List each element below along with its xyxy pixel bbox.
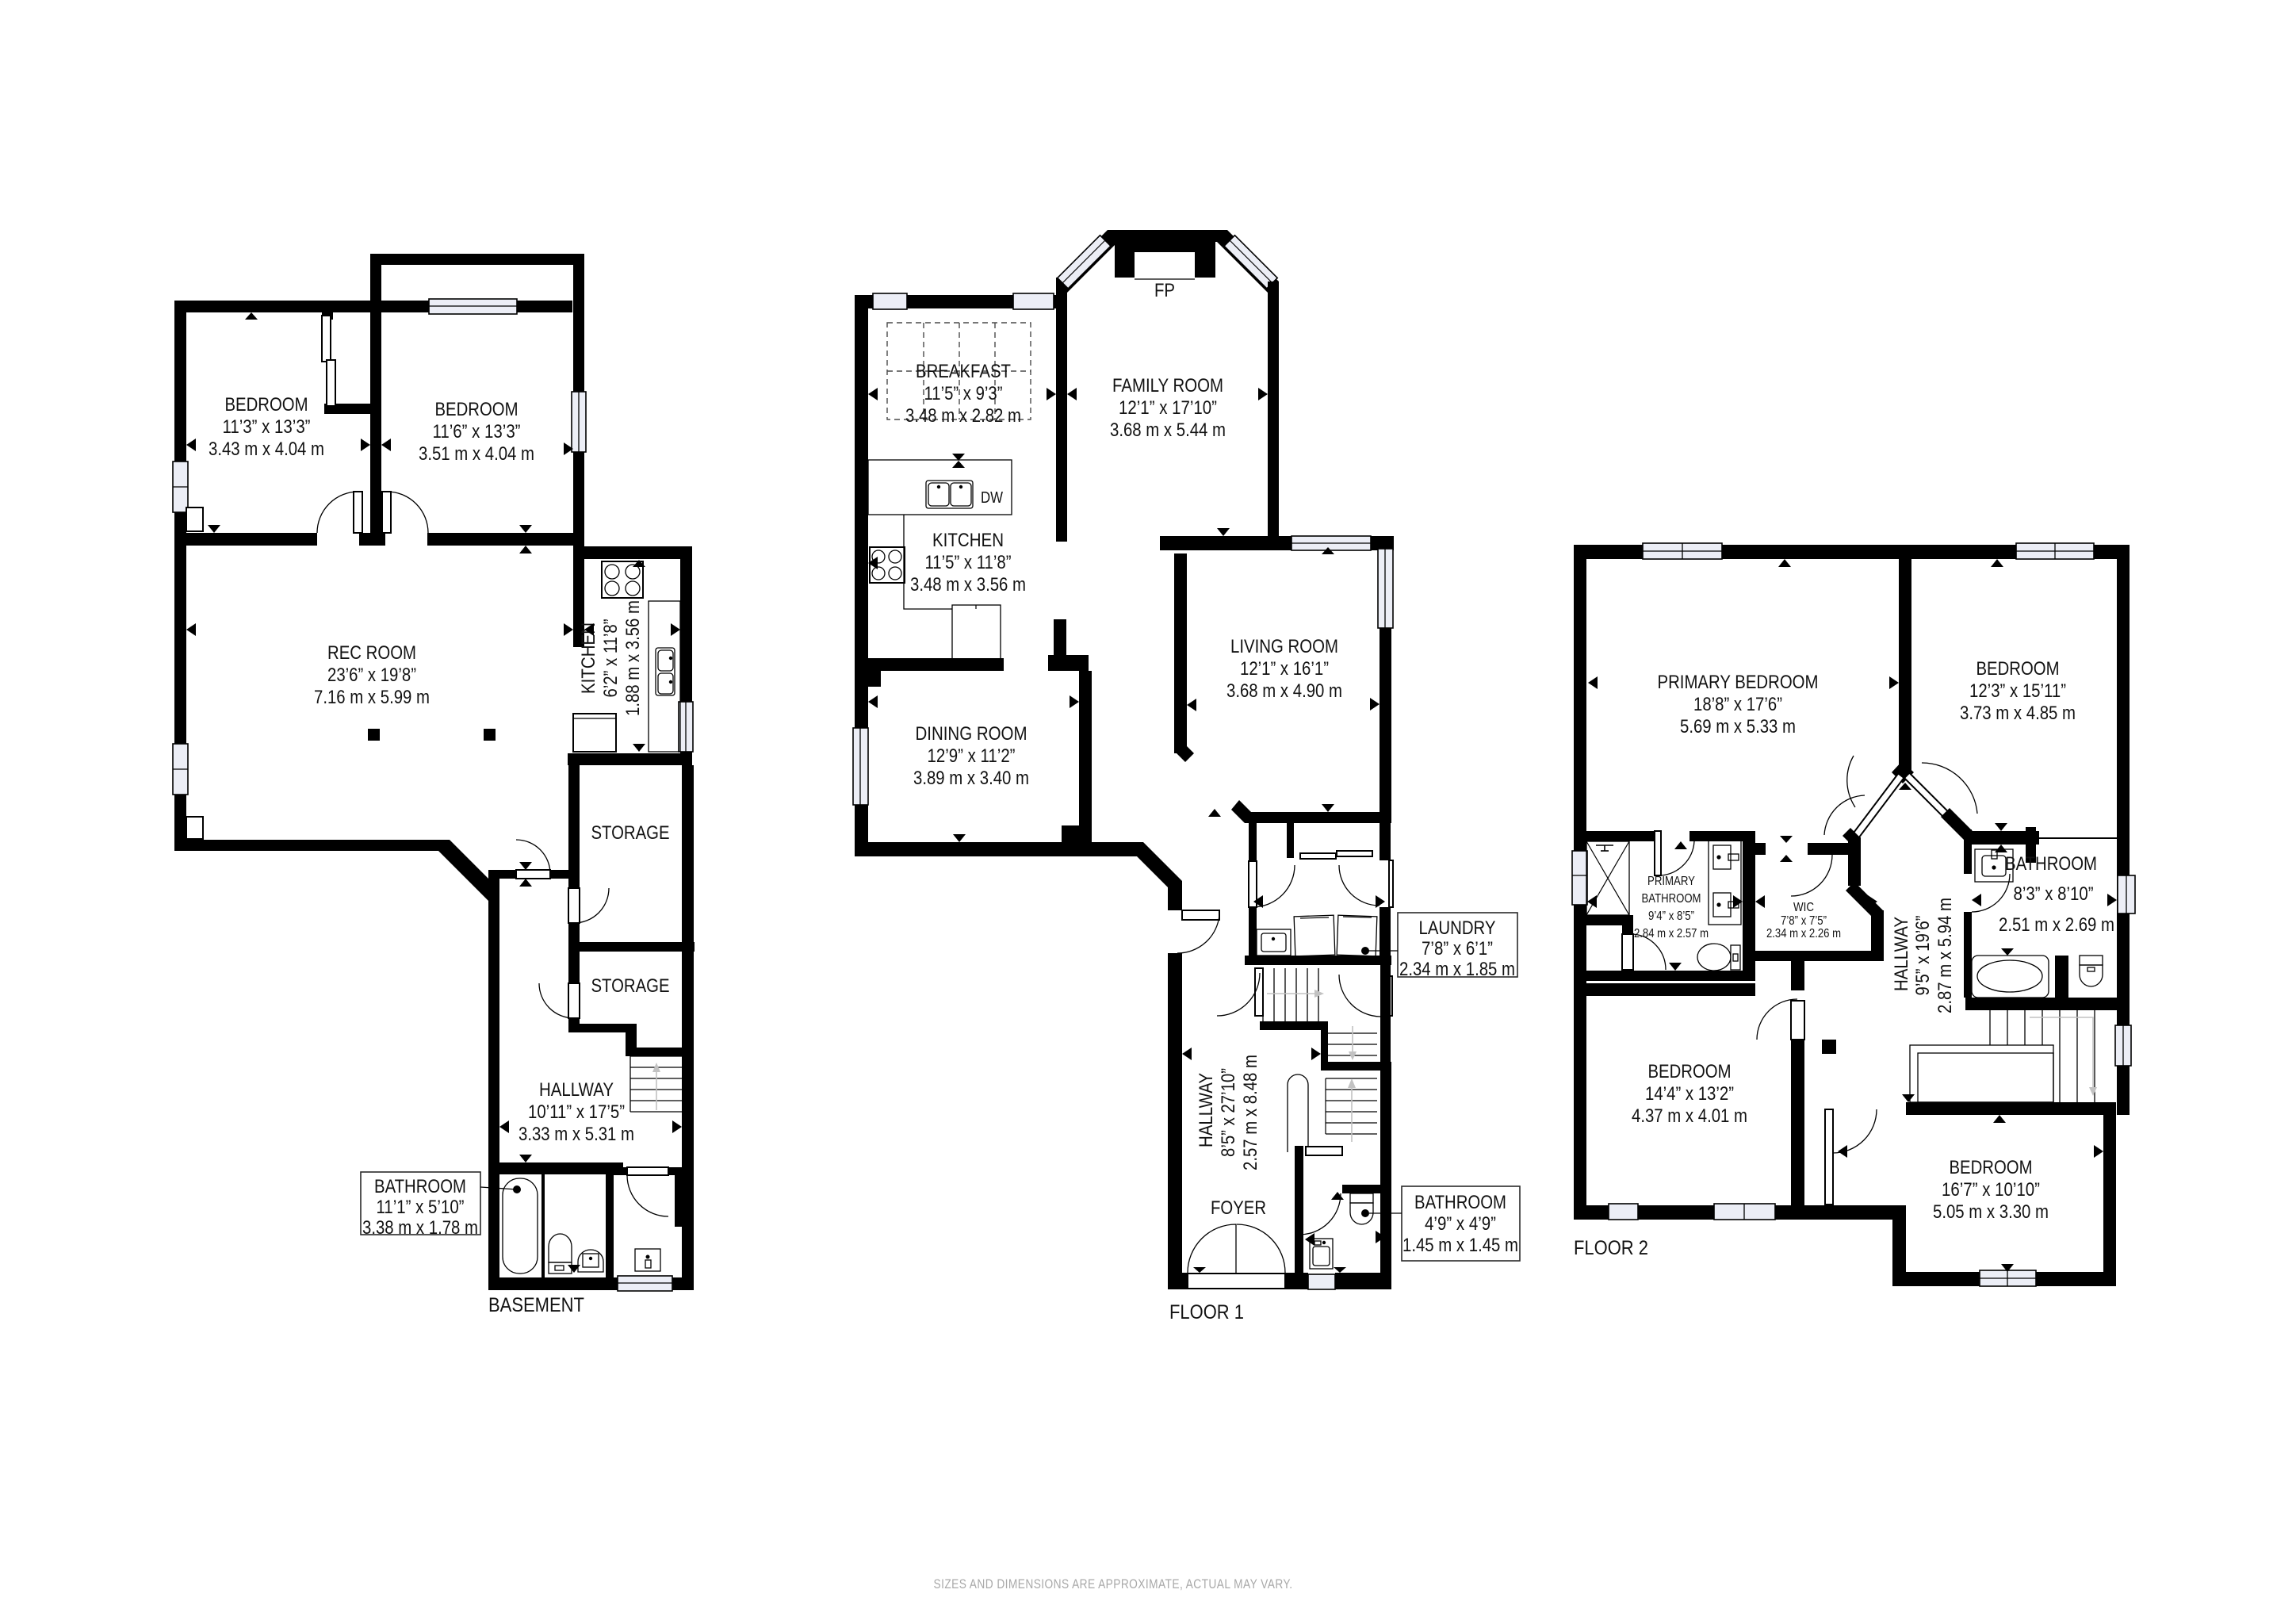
svg-text:3.68 m x 5.44 m: 3.68 m x 5.44 m	[1110, 419, 1226, 441]
svg-text:12’1” x 16’1”: 12’1” x 16’1”	[1240, 658, 1329, 680]
svg-text:BEDROOM: BEDROOM	[1976, 658, 2060, 680]
svg-text:11’5” x 11’8”: 11’5” x 11’8”	[925, 552, 1012, 573]
svg-text:9’4” x 8’5”: 9’4” x 8’5”	[1648, 910, 1694, 923]
svg-text:3.89 m x 3.40 m: 3.89 m x 3.40 m	[913, 768, 1029, 789]
svg-text:11’5” x 9’3”: 11’5” x 9’3”	[924, 383, 1003, 404]
svg-text:2.84 m x 2.57 m: 2.84 m x 2.57 m	[1634, 927, 1709, 940]
svg-text:FOYER: FOYER	[1211, 1197, 1266, 1219]
svg-text:SIZES AND DIMENSIONS ARE APPRO: SIZES AND DIMENSIONS ARE APPROXIMATE, AC…	[934, 1577, 1293, 1591]
svg-text:3.33 m x 5.31 m: 3.33 m x 5.31 m	[519, 1124, 634, 1145]
svg-text:3.48 m x 2.82 m: 3.48 m x 2.82 m	[905, 405, 1021, 427]
svg-text:KITCHEN: KITCHEN	[578, 622, 599, 694]
svg-text:3.68 m x 4.90 m: 3.68 m x 4.90 m	[1226, 680, 1342, 702]
svg-text:BATHROOM: BATHROOM	[374, 1176, 466, 1197]
svg-text:7’8” x 7’5”: 7’8” x 7’5”	[1781, 914, 1827, 928]
svg-text:8’3” x 8’10”: 8’3” x 8’10”	[2014, 883, 2094, 905]
svg-text:10’11” x 17’5”: 10’11” x 17’5”	[528, 1101, 625, 1123]
svg-text:23’6” x 19’8”: 23’6” x 19’8”	[327, 665, 416, 686]
svg-text:FLOOR 1: FLOOR 1	[1169, 1301, 1244, 1323]
svg-text:12’1” x 17’10”: 12’1” x 17’10”	[1119, 397, 1217, 419]
svg-text:DW: DW	[981, 489, 1003, 507]
svg-text:HALLWAY: HALLWAY	[1891, 917, 1912, 991]
svg-text:1.88 m x 3.56 m: 1.88 m x 3.56 m	[622, 600, 644, 716]
svg-text:9’5” x 19’6”: 9’5” x 19’6”	[1912, 916, 1934, 996]
svg-text:6’2” x 11’8”: 6’2” x 11’8”	[600, 619, 622, 698]
svg-text:BEDROOM: BEDROOM	[435, 399, 519, 420]
svg-text:5.05 m x 3.30 m: 5.05 m x 3.30 m	[1933, 1201, 2049, 1223]
svg-text:2.51 m x 2.69 m: 2.51 m x 2.69 m	[1999, 914, 2114, 936]
svg-text:STORAGE: STORAGE	[591, 822, 670, 844]
svg-text:18’8” x 17’6”: 18’8” x 17’6”	[1693, 694, 1782, 715]
svg-text:2.57 m x 8.48 m: 2.57 m x 8.48 m	[1240, 1055, 1261, 1170]
svg-text:14’4” x 13’2”: 14’4” x 13’2”	[1645, 1083, 1734, 1105]
svg-text:2.34 m x 1.85 m: 2.34 m x 1.85 m	[1399, 959, 1515, 980]
svg-text:BEDROOM: BEDROOM	[1648, 1061, 1732, 1082]
svg-text:STORAGE: STORAGE	[591, 975, 670, 997]
svg-text:DINING ROOM: DINING ROOM	[916, 723, 1027, 745]
svg-text:WIC: WIC	[1793, 901, 1814, 914]
svg-text:2.34 m x 2.26 m: 2.34 m x 2.26 m	[1766, 927, 1841, 940]
svg-text:LIVING ROOM: LIVING ROOM	[1230, 636, 1338, 657]
svg-text:BEDROOM: BEDROOM	[1950, 1157, 2033, 1178]
svg-text:7.16 m x 5.99 m: 7.16 m x 5.99 m	[314, 687, 430, 708]
svg-text:KITCHEN: KITCHEN	[932, 530, 1004, 551]
svg-text:4.37 m x 4.01 m: 4.37 m x 4.01 m	[1632, 1105, 1747, 1127]
svg-text:3.51 m x 4.04 m: 3.51 m x 4.04 m	[419, 443, 534, 465]
svg-text:HALLWAY: HALLWAY	[1196, 1073, 1217, 1147]
svg-text:PRIMARY BEDROOM: PRIMARY BEDROOM	[1658, 672, 1819, 693]
svg-text:BATHROOM: BATHROOM	[2005, 853, 2097, 875]
svg-text:11’6” x 13’3”: 11’6” x 13’3”	[433, 421, 521, 442]
svg-text:BASEMENT: BASEMENT	[488, 1294, 584, 1316]
svg-text:7’8” x 6’1”: 7’8” x 6’1”	[1422, 938, 1493, 959]
svg-text:BEDROOM: BEDROOM	[225, 394, 308, 416]
svg-text:FLOOR 2: FLOOR 2	[1574, 1237, 1648, 1259]
svg-text:12’3” x 15’11”: 12’3” x 15’11”	[1969, 680, 2066, 702]
svg-text:3.43 m x 4.04 m: 3.43 m x 4.04 m	[209, 439, 324, 460]
svg-text:BREAKFAST: BREAKFAST	[916, 361, 1011, 382]
svg-text:LAUNDRY: LAUNDRY	[1419, 917, 1496, 939]
svg-text:3.73 m x 4.85 m: 3.73 m x 4.85 m	[1960, 703, 2076, 724]
svg-text:BATHROOM: BATHROOM	[1642, 892, 1701, 906]
svg-text:FP: FP	[1154, 280, 1175, 301]
svg-text:8’5” x 27’10”: 8’5” x 27’10”	[1218, 1068, 1239, 1157]
svg-text:2.87 m x 5.94 m: 2.87 m x 5.94 m	[1934, 898, 1956, 1013]
svg-text:5.69 m x 5.33 m: 5.69 m x 5.33 m	[1680, 716, 1796, 737]
svg-text:12’9” x 11’2”: 12’9” x 11’2”	[928, 745, 1016, 767]
svg-text:11’1” x 5’10”: 11’1” x 5’10”	[377, 1197, 465, 1218]
svg-text:3.48 m x 3.56 m: 3.48 m x 3.56 m	[910, 574, 1026, 596]
svg-text:11’3” x 13’3”: 11’3” x 13’3”	[223, 416, 311, 438]
svg-text:16’7” x 10’10”: 16’7” x 10’10”	[1942, 1179, 2040, 1201]
svg-text:BATHROOM: BATHROOM	[1414, 1192, 1506, 1213]
svg-text:PRIMARY: PRIMARY	[1647, 875, 1695, 888]
svg-text:HALLWAY: HALLWAY	[539, 1079, 614, 1101]
svg-text:REC ROOM: REC ROOM	[327, 642, 416, 664]
svg-text:1.45 m x 1.45 m: 1.45 m x 1.45 m	[1402, 1235, 1518, 1256]
svg-text:3.38 m x 1.78 m: 3.38 m x 1.78 m	[362, 1217, 478, 1239]
svg-text:FAMILY ROOM: FAMILY ROOM	[1112, 375, 1223, 396]
svg-text:4’9” x 4’9”: 4’9” x 4’9”	[1425, 1213, 1496, 1235]
